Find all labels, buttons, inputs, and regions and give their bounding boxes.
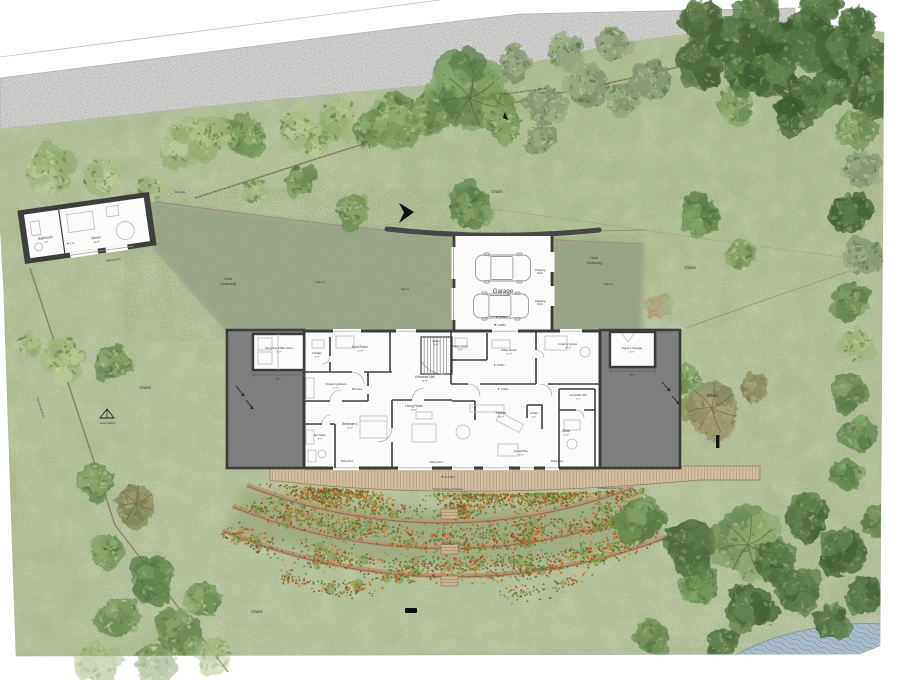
svg-text:Battery Store: Battery Store (452, 344, 468, 348)
svg-text:22 m²: 22 m² (347, 426, 353, 429)
svg-text:Hard: Hard (224, 277, 232, 281)
svg-text:8 m²: 8 m² (277, 350, 282, 353)
svg-text:Grass: Grass (251, 609, 262, 614)
svg-text:Grass: Grass (491, 189, 502, 194)
svg-text:Stone steps: Stone steps (442, 543, 455, 546)
svg-text:Granny Annex: Granny Annex (558, 342, 578, 346)
svg-text:Recycling & Bike Store: Recycling & Bike Store (265, 346, 293, 350)
svg-text:Mini Gate: Mini Gate (175, 191, 186, 194)
svg-text:Step up: Step up (316, 280, 325, 284)
svg-text:Grass: Grass (139, 385, 150, 390)
svg-text:8 m²: 8 m² (318, 437, 323, 440)
svg-text:⚑ -0.05m: ⚑ -0.05m (493, 363, 504, 367)
svg-text:6 m²: 6 m² (315, 355, 320, 358)
svg-text:⚑ -0.075m: ⚑ -0.075m (441, 475, 455, 479)
svg-text:Entrance Hall: Entrance Hall (415, 375, 434, 379)
svg-text:Utility Room: Utility Room (501, 348, 518, 352)
svg-text:Mini Gate: Mini Gate (352, 388, 363, 391)
svg-text:16 m²: 16 m² (563, 433, 569, 436)
svg-text:Step up: Step up (604, 282, 613, 286)
svg-text:36 m²: 36 m² (422, 379, 428, 382)
svg-text:Surfacing: Surfacing (586, 261, 601, 265)
svg-text:Visitor parking: Visitor parking (100, 422, 116, 425)
svg-text:Point: Point (537, 271, 543, 275)
svg-text:5 m²: 5 m² (576, 397, 581, 400)
svg-text:25m: 25m (275, 377, 280, 381)
svg-text:Sliding Door: Sliding Door (551, 460, 564, 463)
svg-text:Cloaks: Cloaks (312, 351, 322, 355)
svg-text:Stairs: Stairs (432, 339, 440, 343)
svg-text:Surfacing: Surfacing (220, 282, 235, 286)
svg-text:Hard: Hard (590, 256, 598, 260)
svg-text:Office: Office (562, 429, 570, 433)
svg-text:8 m²: 8 m² (519, 453, 524, 456)
svg-text:36 m²: 36 m² (411, 408, 417, 411)
svg-text:8 m²: 8 m² (630, 350, 635, 353)
svg-text:Step up: Step up (401, 288, 410, 291)
svg-text:Condensed stone steps: Condensed stone steps (597, 487, 623, 490)
svg-text:3 m²: 3 m² (532, 415, 537, 418)
svg-text:Garden Storage: Garden Storage (622, 346, 643, 350)
svg-text:Living Room: Living Room (405, 404, 423, 408)
svg-text:7 m²: 7 m² (458, 348, 463, 351)
svg-text:Bedroom 1: Bedroom 1 (342, 422, 358, 426)
svg-text:⚑ -2.85m: ⚑ -2.85m (494, 323, 507, 327)
svg-text:Grass: Grass (684, 265, 695, 270)
svg-text:Dressing Room: Dressing Room (326, 382, 347, 386)
svg-text:36 m²: 36 m² (565, 346, 571, 349)
svg-text:Boot Room: Boot Room (352, 345, 368, 349)
svg-text:Larder: Larder (530, 411, 538, 415)
svg-text:18m: 18m (629, 373, 634, 377)
svg-text:Sliding Door: Sliding Door (341, 460, 354, 463)
svg-text:Wildflower: Wildflower (534, 568, 545, 571)
svg-text:12 m²: 12 m² (333, 386, 339, 389)
svg-text:Snug/Play: Snug/Play (514, 449, 528, 453)
svg-text:Accessible WC: Accessible WC (569, 393, 587, 397)
svg-text:Grass: Grass (706, 393, 717, 398)
svg-text:Garage: Garage (493, 288, 514, 295)
svg-text:⚑ -0.05m: ⚑ -0.05m (495, 315, 506, 319)
svg-text:En Suite: En Suite (314, 433, 326, 437)
svg-text:Point: Point (537, 302, 543, 306)
svg-text:Timber decking w/ balcony: Timber decking w/ balcony (433, 487, 464, 491)
svg-text:30 m²: 30 m² (498, 415, 504, 418)
svg-text:Sliding Doors: Sliding Doors (429, 461, 444, 464)
svg-text:Kitchen: Kitchen (496, 411, 507, 415)
svg-text:8 m²: 8 m² (434, 343, 439, 346)
svg-text:13 m²: 13 m² (357, 349, 363, 352)
svg-text:⚑ -0.05m: ⚑ -0.05m (497, 387, 508, 391)
svg-text:10 m²: 10 m² (506, 352, 512, 355)
svg-text:Tree: Tree (743, 550, 748, 553)
